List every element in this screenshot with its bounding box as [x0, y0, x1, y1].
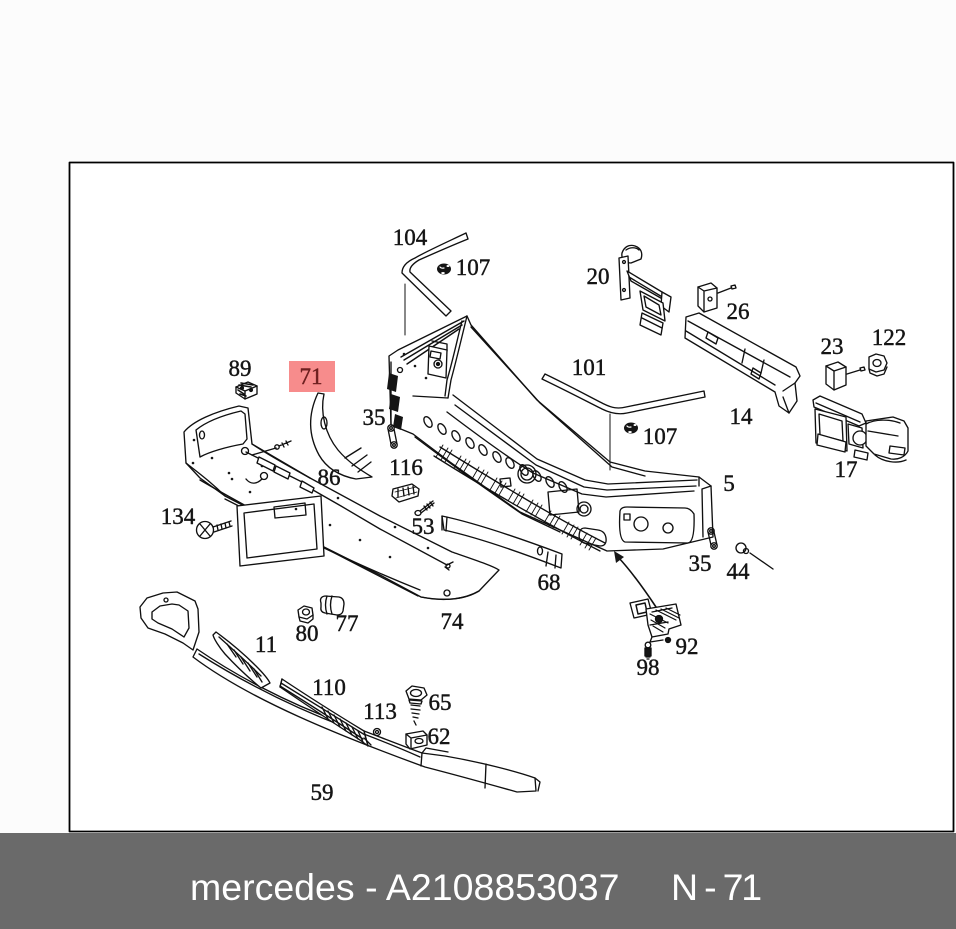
svg-text:113: 113	[363, 699, 397, 724]
svg-text:N - 71: N - 71	[671, 866, 761, 908]
svg-text:71: 71	[300, 364, 323, 389]
svg-text:23: 23	[821, 334, 844, 359]
svg-text:134: 134	[161, 504, 196, 529]
svg-text:116: 116	[389, 455, 423, 480]
svg-text:98: 98	[637, 655, 660, 680]
svg-text:107: 107	[456, 255, 491, 280]
svg-text:110: 110	[312, 675, 346, 700]
svg-text:20: 20	[587, 264, 610, 289]
svg-text:62: 62	[428, 724, 451, 749]
svg-text:14: 14	[730, 404, 754, 429]
svg-text:65: 65	[429, 690, 452, 715]
svg-text:59: 59	[311, 780, 334, 805]
svg-text:89: 89	[229, 356, 252, 381]
svg-text:122: 122	[872, 325, 907, 350]
svg-text:92: 92	[676, 634, 699, 659]
svg-text:53: 53	[412, 514, 435, 539]
svg-text:104: 104	[393, 225, 428, 250]
svg-text:86: 86	[318, 465, 341, 490]
svg-text:77: 77	[336, 611, 359, 636]
svg-text:101: 101	[572, 355, 607, 380]
svg-text:17: 17	[835, 457, 858, 482]
svg-text:35: 35	[689, 551, 712, 576]
svg-text:74: 74	[441, 609, 465, 634]
svg-text:44: 44	[727, 559, 751, 584]
svg-text:5: 5	[723, 471, 735, 496]
svg-text:mercedes - A2108853037: mercedes - A2108853037	[190, 866, 619, 908]
svg-text:68: 68	[538, 570, 561, 595]
svg-text:26: 26	[727, 299, 750, 324]
svg-text:80: 80	[296, 621, 319, 646]
svg-text:35: 35	[363, 405, 386, 430]
svg-text:11: 11	[255, 632, 277, 657]
svg-text:107: 107	[643, 424, 678, 449]
